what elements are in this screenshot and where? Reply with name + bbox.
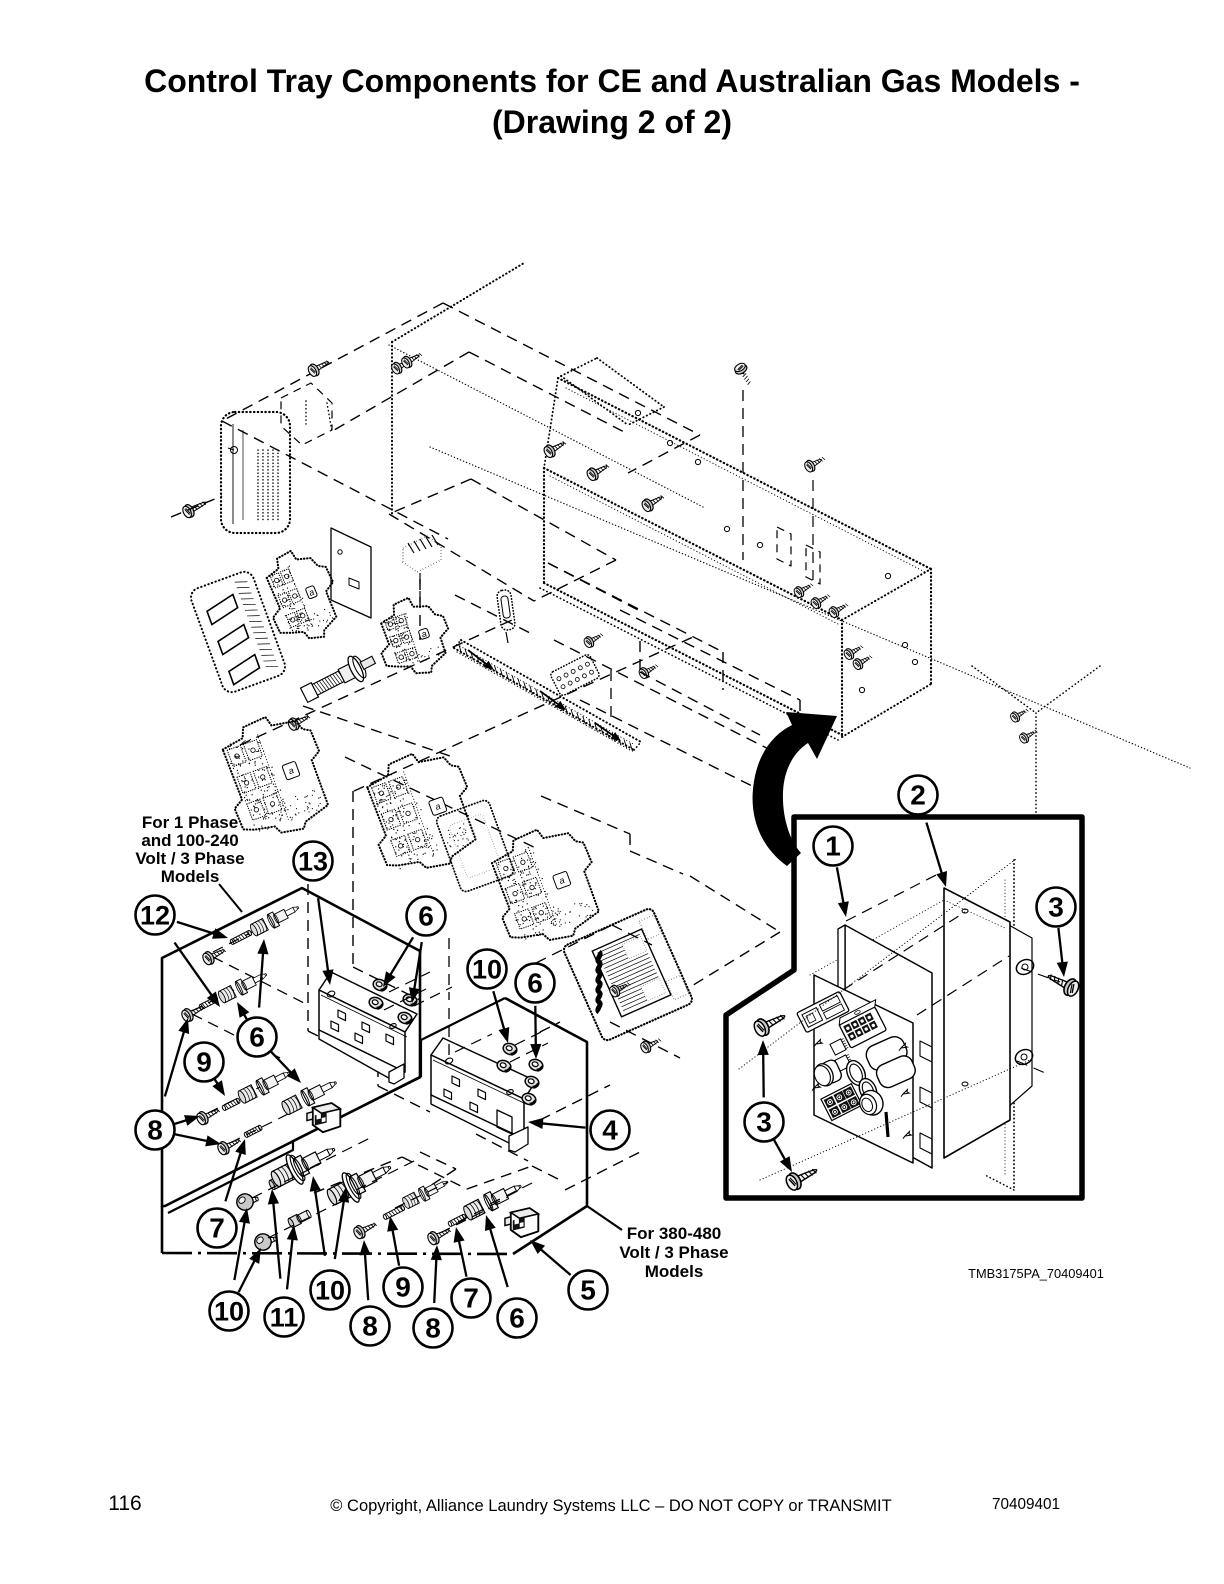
svg-text:70409401: 70409401	[992, 1496, 1060, 1513]
svg-text:116: 116	[108, 1492, 141, 1515]
svg-text:2: 2	[910, 780, 926, 811]
svg-text:11: 11	[270, 1303, 299, 1333]
svg-text:13: 13	[298, 847, 328, 877]
svg-text:10: 10	[315, 1276, 345, 1306]
svg-text:10: 10	[472, 955, 502, 985]
svg-text:Models: Models	[161, 867, 220, 886]
svg-text:For 380-480: For 380-480	[627, 1224, 722, 1243]
svg-text:6: 6	[249, 1022, 265, 1053]
svg-text:Volt / 3 Phase: Volt / 3 Phase	[619, 1243, 728, 1262]
svg-text:7: 7	[463, 1283, 479, 1314]
svg-text:6: 6	[509, 1303, 525, 1334]
svg-text:Volt / 3 Phase: Volt / 3 Phase	[135, 849, 244, 868]
svg-text:5: 5	[580, 1275, 596, 1306]
svg-text:Models: Models	[645, 1262, 704, 1281]
svg-text:9: 9	[395, 1272, 411, 1303]
svg-text:3: 3	[756, 1107, 772, 1138]
svg-text:TMB3175PA_70409401: TMB3175PA_70409401	[968, 1266, 1104, 1281]
svg-text:and 100-240: and 100-240	[141, 831, 238, 850]
svg-text:8: 8	[425, 1313, 441, 1344]
svg-text:For 1 Phase: For 1 Phase	[142, 813, 238, 832]
svg-text:8: 8	[362, 1311, 378, 1342]
svg-text:Control Tray Components for CE: Control Tray Components for CE and Austr…	[144, 63, 1080, 99]
svg-text:6: 6	[527, 968, 543, 999]
svg-text:7: 7	[209, 1213, 225, 1244]
svg-text:9: 9	[196, 1047, 212, 1078]
svg-text:8: 8	[147, 1115, 163, 1146]
svg-text:12: 12	[140, 901, 170, 931]
svg-text:6: 6	[418, 901, 434, 932]
svg-text:4: 4	[602, 1115, 618, 1146]
svg-text:© Copyright, Alliance Laundry: © Copyright, Alliance Laundry Systems LL…	[330, 1497, 891, 1515]
svg-text:(Drawing 2 of 2): (Drawing 2 of 2)	[492, 104, 732, 140]
svg-text:1: 1	[825, 831, 841, 862]
svg-text:3: 3	[1048, 892, 1064, 923]
svg-text:10: 10	[214, 1297, 244, 1327]
